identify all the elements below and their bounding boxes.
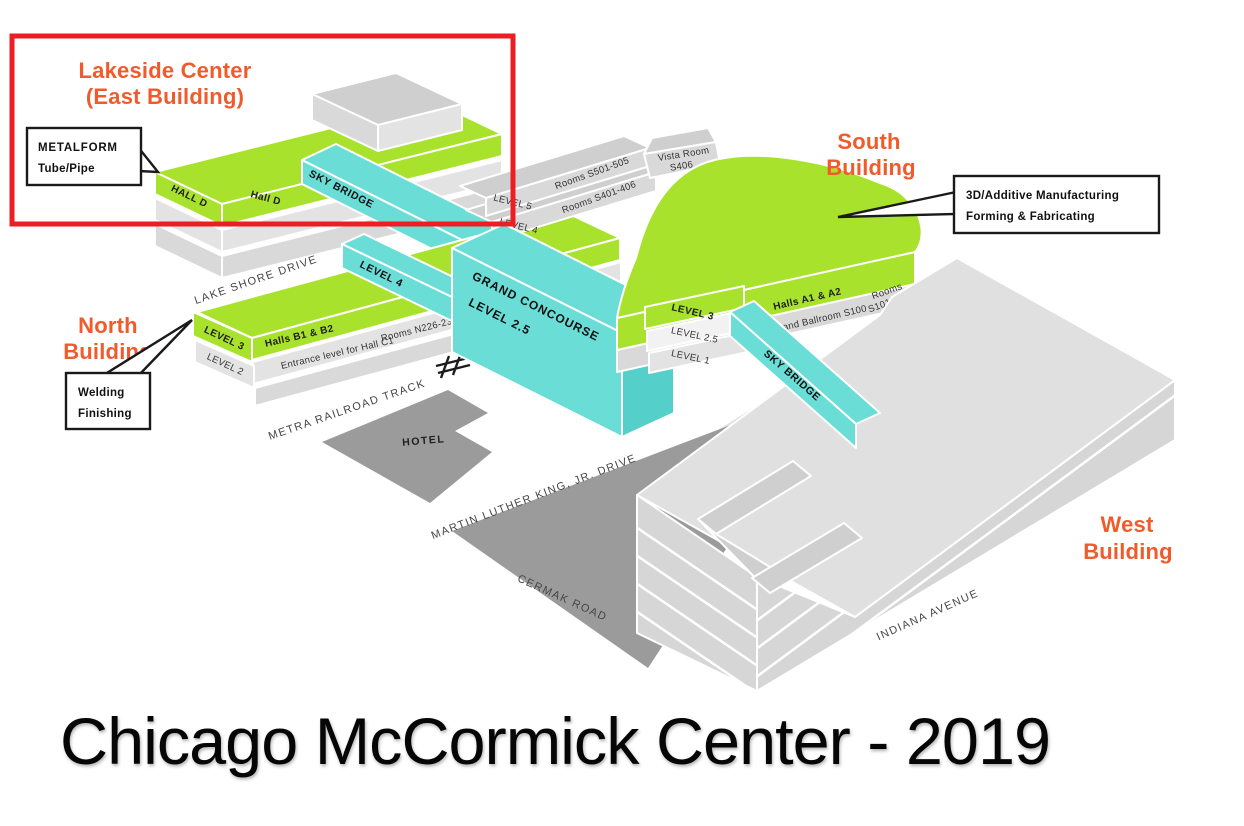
west-heading-1: West	[1101, 512, 1154, 537]
mccormick-map: HALL D Hall D SKY BRIDGE LEVEL 3 LEVEL 2…	[0, 0, 1244, 826]
south-heading-2: Building	[826, 155, 916, 180]
lakeside-heading-2: (East Building)	[86, 84, 244, 109]
callout-welding-box	[66, 373, 150, 429]
callout-metalform-box	[27, 128, 141, 185]
callout-metalform-line1: METALFORM	[38, 142, 118, 154]
callout-welding-line2: Finishing	[78, 408, 132, 420]
callout-additive-line2: Forming & Fabricating	[966, 211, 1095, 223]
page-title: Chicago McCormick Center - 2019	[60, 704, 1050, 778]
callout-additive-box	[954, 176, 1159, 233]
slide: HALL D Hall D SKY BRIDGE LEVEL 3 LEVEL 2…	[0, 0, 1244, 826]
west-heading-2: Building	[1083, 539, 1173, 564]
north-heading-1: North	[78, 313, 138, 338]
callout-metalform: METALFORM Tube/Pipe	[27, 128, 158, 185]
callout-metalform-line2: Tube/Pipe	[38, 163, 95, 175]
callout-additive-line1: 3D/Additive Manufacturing	[966, 190, 1119, 202]
lakeside-heading-1: Lakeside Center	[79, 58, 252, 83]
callout-welding-line1: Welding	[78, 387, 125, 399]
south-heading-1: South	[837, 129, 900, 154]
